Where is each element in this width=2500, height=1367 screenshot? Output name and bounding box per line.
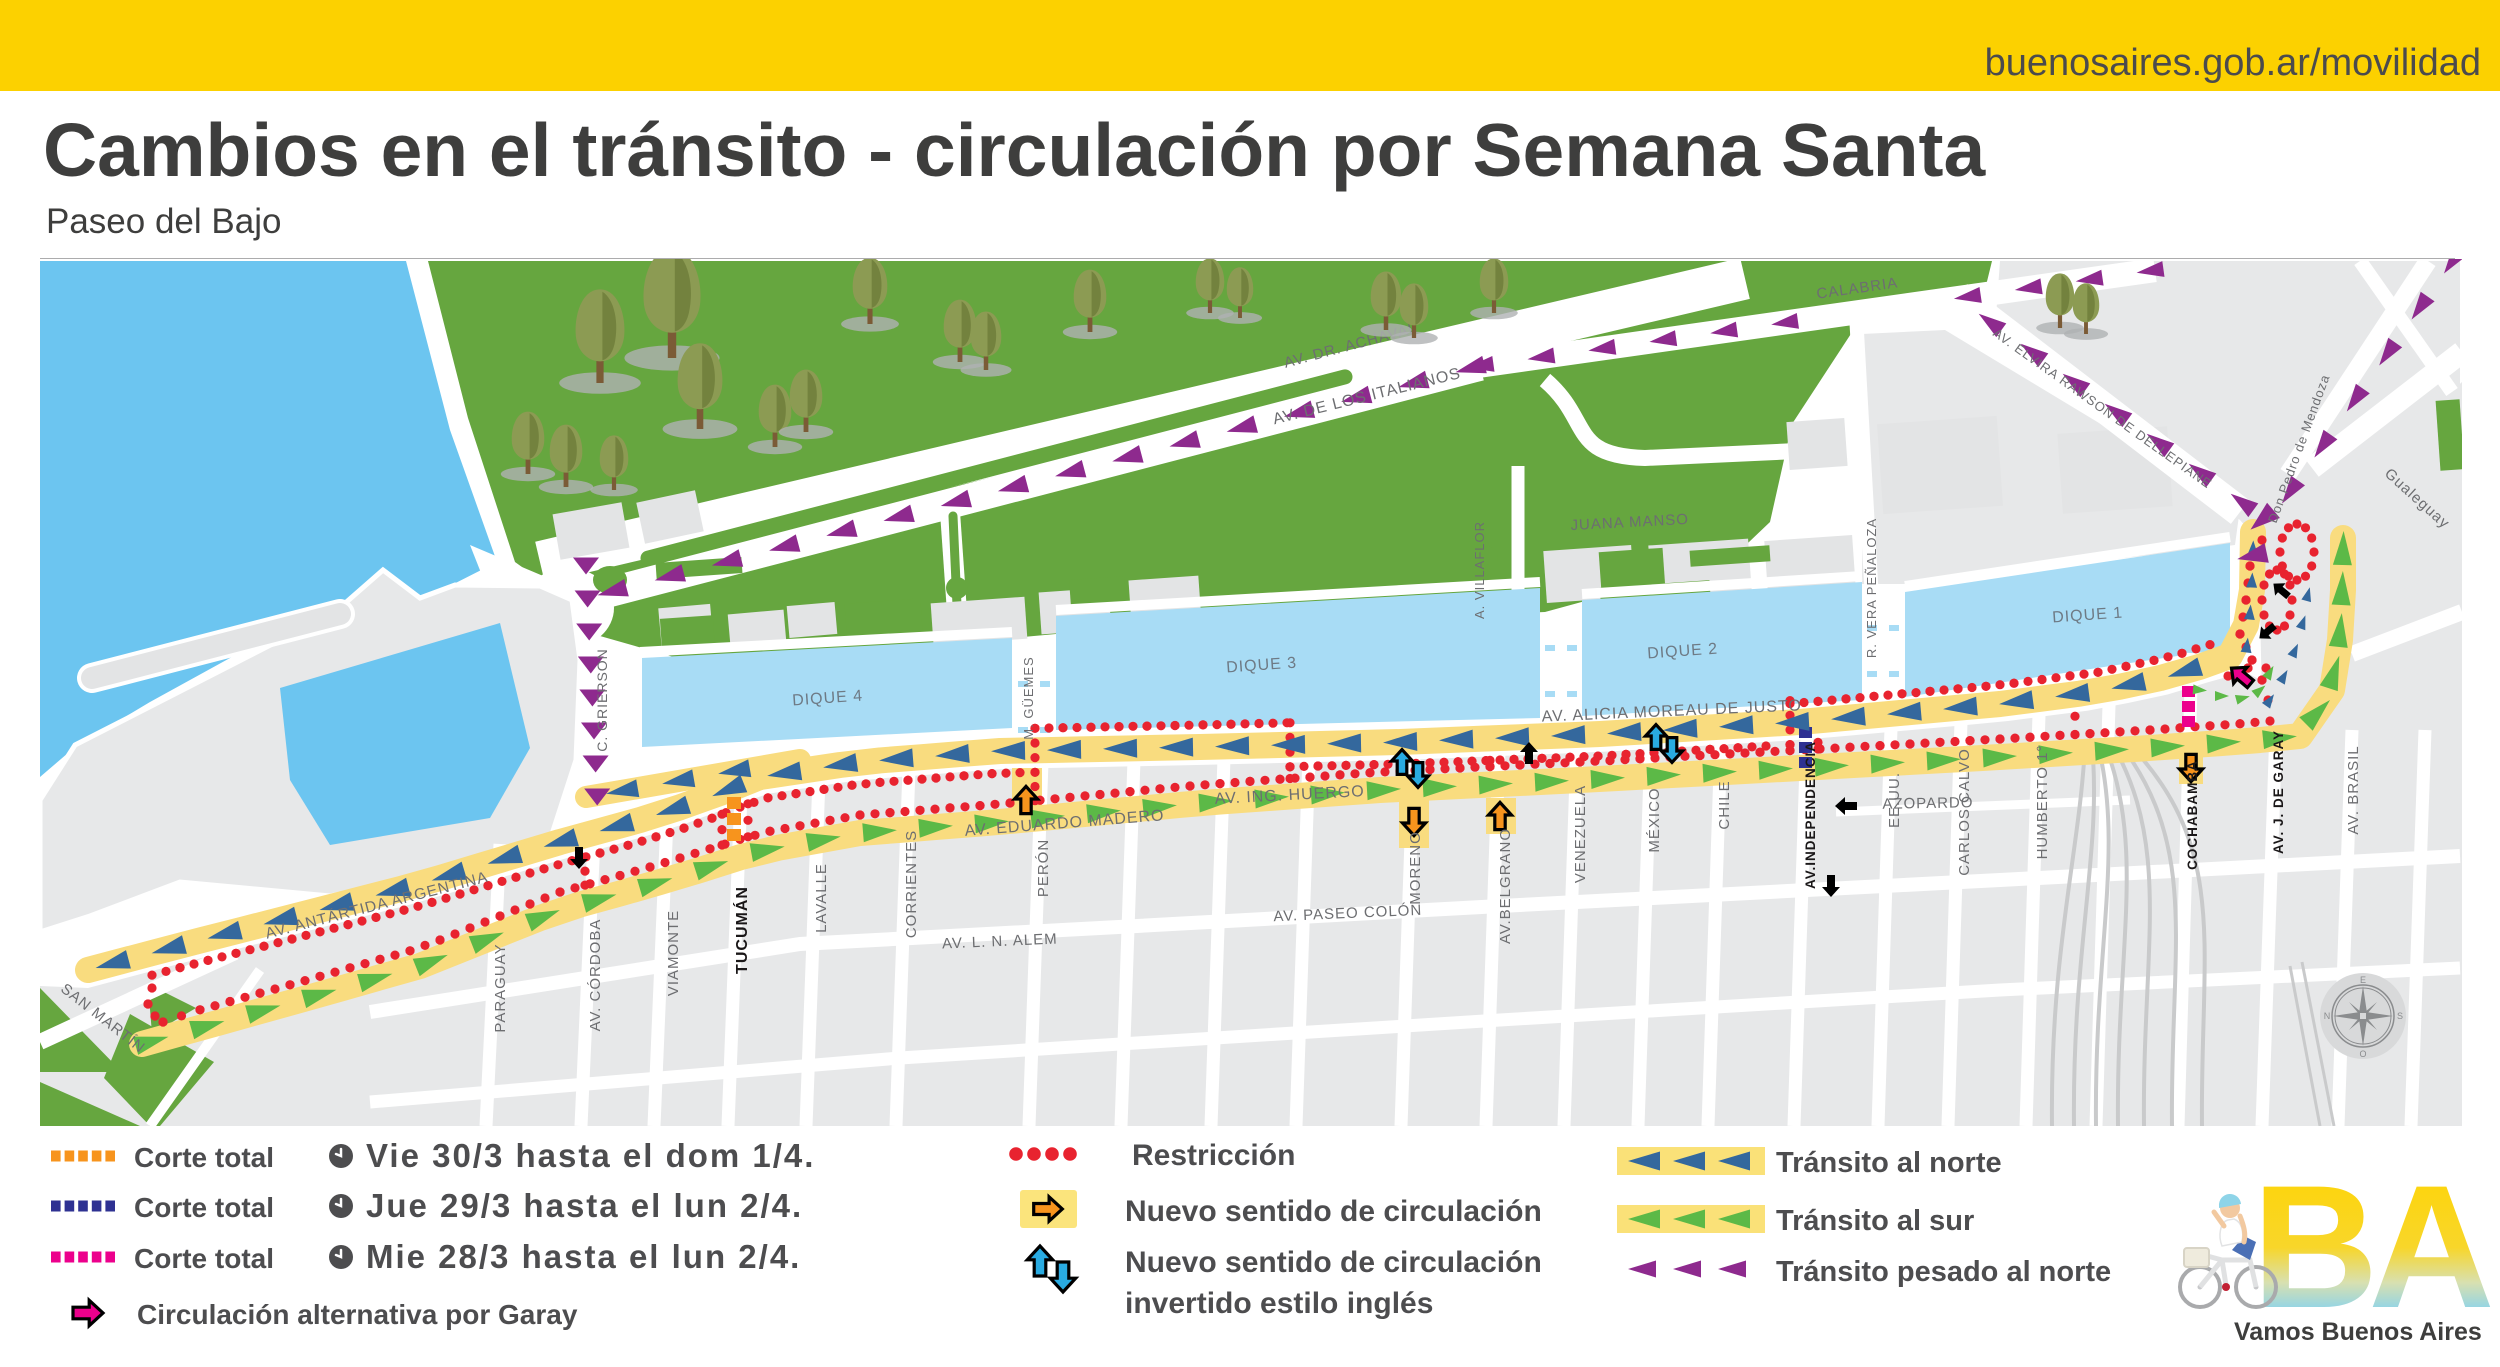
svg-text:R. VERA PEÑALOZA: R. VERA PEÑALOZA bbox=[1864, 518, 1879, 658]
svg-text:buenosaires.gob.ar/movilidad: buenosaires.gob.ar/movilidad bbox=[1985, 42, 2481, 84]
svg-text:Tránsito al norte: Tránsito al norte bbox=[1776, 1147, 2002, 1179]
svg-text:M. GÜEMES: M. GÜEMES bbox=[1021, 656, 1036, 739]
svg-text:HUMBERTO 1°: HUMBERTO 1° bbox=[2034, 745, 2051, 860]
svg-text:invertido estilo inglés: invertido estilo inglés bbox=[1125, 1287, 1433, 1320]
svg-text:C. GRIERSON: C. GRIERSON bbox=[594, 648, 610, 752]
svg-text:Restricción: Restricción bbox=[1132, 1139, 1295, 1172]
svg-text:Jue 29/3 hasta el lun 2/4.: Jue 29/3 hasta el lun 2/4. bbox=[366, 1187, 803, 1224]
svg-text:CHILE: CHILE bbox=[1716, 780, 1733, 829]
svg-text:Tránsito al sur: Tránsito al sur bbox=[1776, 1205, 1974, 1237]
svg-text:AZOPARDO: AZOPARDO bbox=[1882, 794, 1973, 813]
svg-text:VENEZUELA: VENEZUELA bbox=[1572, 785, 1589, 883]
svg-text:VIAMONTE: VIAMONTE bbox=[665, 910, 682, 996]
svg-text:Tránsito pesado al norte: Tránsito pesado al norte bbox=[1776, 1256, 2111, 1288]
svg-text:AV. BRASIL: AV. BRASIL bbox=[2345, 745, 2362, 834]
svg-text:Corte total: Corte total bbox=[134, 1243, 274, 1274]
svg-text:E: E bbox=[2360, 975, 2366, 985]
svg-text:LAVALLE: LAVALLE bbox=[813, 863, 830, 933]
svg-text:O: O bbox=[2359, 1049, 2366, 1059]
svg-text:Mie 28/3 hasta el lun 2/4.: Mie 28/3 hasta el lun 2/4. bbox=[366, 1238, 801, 1275]
svg-text:Corte total: Corte total bbox=[134, 1192, 274, 1223]
svg-text:A. VILLAFLOR: A. VILLAFLOR bbox=[1472, 521, 1487, 619]
svg-text:CORRIENTES: CORRIENTES bbox=[903, 830, 920, 938]
svg-text:AV. CÓRDOBA: AV. CÓRDOBA bbox=[587, 919, 604, 1032]
svg-text:AV. J. DE GARAY: AV. J. DE GARAY bbox=[2271, 730, 2286, 854]
svg-text:Nuevo sentido de circulación: Nuevo sentido de circulación bbox=[1125, 1246, 1542, 1279]
svg-text:Cambios en el tránsito - circu: Cambios en el tránsito - circulación por… bbox=[43, 108, 1986, 192]
svg-text:BA: BA bbox=[2252, 1150, 2490, 1345]
svg-text:TUCUMÁN: TUCUMÁN bbox=[732, 886, 751, 974]
svg-text:PARAGUAY: PARAGUAY bbox=[492, 943, 509, 1032]
svg-text:AV.BELGRANO: AV.BELGRANO bbox=[1497, 828, 1514, 944]
svg-text:Circulación alternativa por Ga: Circulación alternativa por Garay bbox=[137, 1299, 578, 1330]
svg-text:S: S bbox=[2397, 1011, 2403, 1021]
svg-text:Vamos Buenos Aires: Vamos Buenos Aires bbox=[2234, 1318, 2482, 1346]
svg-text:Nuevo sentido de circulación: Nuevo sentido de circulación bbox=[1125, 1195, 1542, 1228]
svg-text:Corte total: Corte total bbox=[134, 1142, 274, 1173]
svg-text:MÉXICO: MÉXICO bbox=[1646, 787, 1663, 852]
svg-text:CARLOS CALVO: CARLOS CALVO bbox=[1956, 748, 1973, 876]
svg-text:COCHABAMBA: COCHABAMBA bbox=[2185, 760, 2200, 870]
svg-text:PERÓN: PERÓN bbox=[1035, 839, 1052, 897]
svg-text:AV.INDEPENDENCIA: AV.INDEPENDENCIA bbox=[1803, 741, 1818, 889]
svg-text:Paseo del Bajo: Paseo del Bajo bbox=[46, 202, 281, 241]
svg-text:MORENO: MORENO bbox=[1407, 831, 1424, 905]
svg-text:N: N bbox=[2324, 1011, 2331, 1021]
svg-text:Vie 30/3 hasta el dom 1/4.: Vie 30/3 hasta el dom 1/4. bbox=[366, 1137, 815, 1174]
